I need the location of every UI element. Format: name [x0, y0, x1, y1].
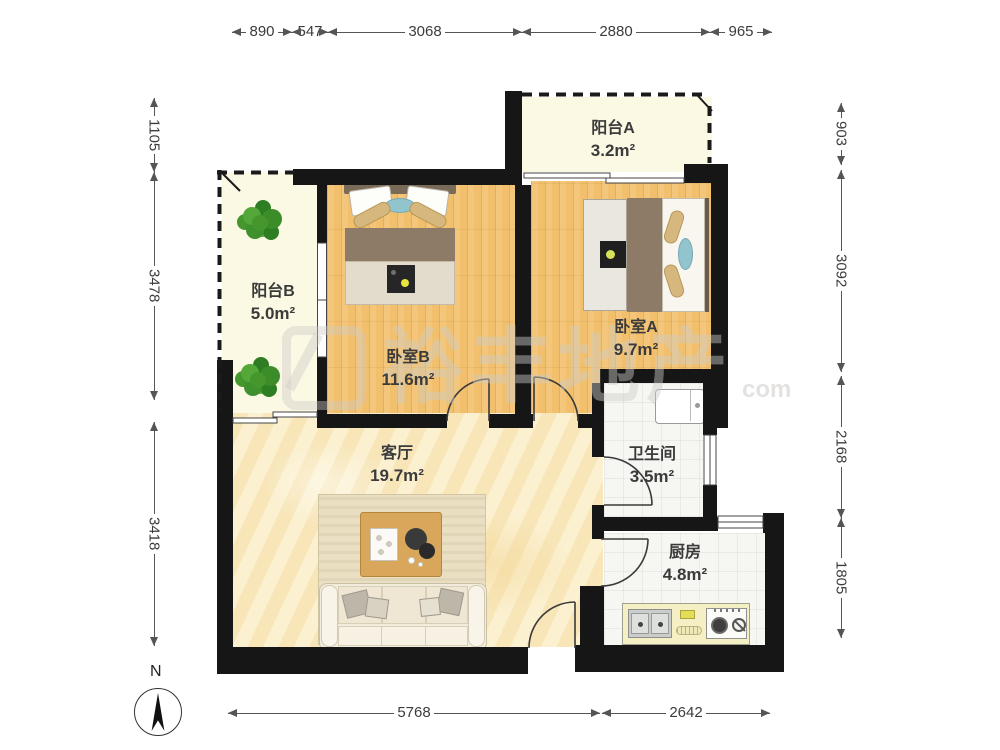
compass-needle-icon	[148, 693, 168, 731]
room-area: 11.6m²	[348, 369, 468, 392]
room-label-balcony-b: 阳台B 5.0m²	[213, 281, 333, 326]
room-label-bedroom-b: 卧室B 11.6m²	[348, 347, 468, 392]
dimension-bottom-5768: 5768	[228, 705, 600, 721]
dimension-left-3418: 3418	[146, 422, 162, 646]
dimension-right-903: 903	[833, 103, 849, 165]
compass-icon	[134, 688, 182, 736]
room-label-balcony-a: 阳台A 3.2m²	[553, 118, 673, 163]
room-area: 5.0m²	[213, 303, 333, 326]
room-name: 阳台B	[213, 281, 333, 303]
kitchen-north-window	[718, 516, 763, 528]
dimension-right-3092: 3092	[833, 170, 849, 372]
dimension-right-2168: 2168	[833, 376, 849, 518]
floor-plan-page: 裕丰地产 com 阳台A 3.2m² 阳台B 5.0m² 卧室B 11.6m² …	[0, 0, 1000, 750]
dimension-bottom-2642: 2642	[602, 705, 770, 721]
room-name: 卧室A	[576, 317, 696, 339]
room-name: 卧室B	[348, 347, 468, 369]
room-area: 19.7m²	[337, 465, 457, 488]
room-name: 卫生间	[592, 444, 712, 466]
compass-north-label: N	[150, 663, 162, 681]
balcony-b-sliding-door	[233, 412, 317, 423]
dimension-left-1105: 1105	[146, 98, 162, 172]
watermark-suffix: com	[742, 376, 791, 404]
entry-door	[529, 602, 575, 648]
dimension-top-3068: 3068	[328, 24, 522, 40]
room-label-bedroom-a: 卧室A 9.7m²	[576, 317, 696, 362]
balcony-b-corner-line	[223, 174, 240, 191]
dimension-right-1805: 1805	[833, 518, 849, 638]
room-label-bathroom: 卫生间 3.5m²	[592, 444, 712, 489]
room-area: 3.5m²	[592, 466, 712, 489]
dimension-top-2880: 2880	[522, 24, 710, 40]
room-area: 9.7m²	[576, 339, 696, 362]
dimension-left-3478: 3478	[146, 172, 162, 400]
dimension-top-890: 890	[232, 24, 292, 40]
room-name: 客厅	[337, 443, 457, 465]
room-area: 3.2m²	[553, 140, 673, 163]
dimension-top-547: 547	[292, 24, 328, 40]
room-label-living-room: 客厅 19.7m²	[337, 443, 457, 488]
room-label-kitchen: 厨房 4.8m²	[625, 542, 745, 587]
balcony-a-corner-line	[698, 96, 712, 111]
dimension-top-965: 965	[710, 24, 772, 40]
room-area: 4.8m²	[625, 564, 745, 587]
room-name: 厨房	[625, 542, 745, 564]
balcony-a-window	[524, 173, 684, 183]
room-name: 阳台A	[553, 118, 673, 140]
